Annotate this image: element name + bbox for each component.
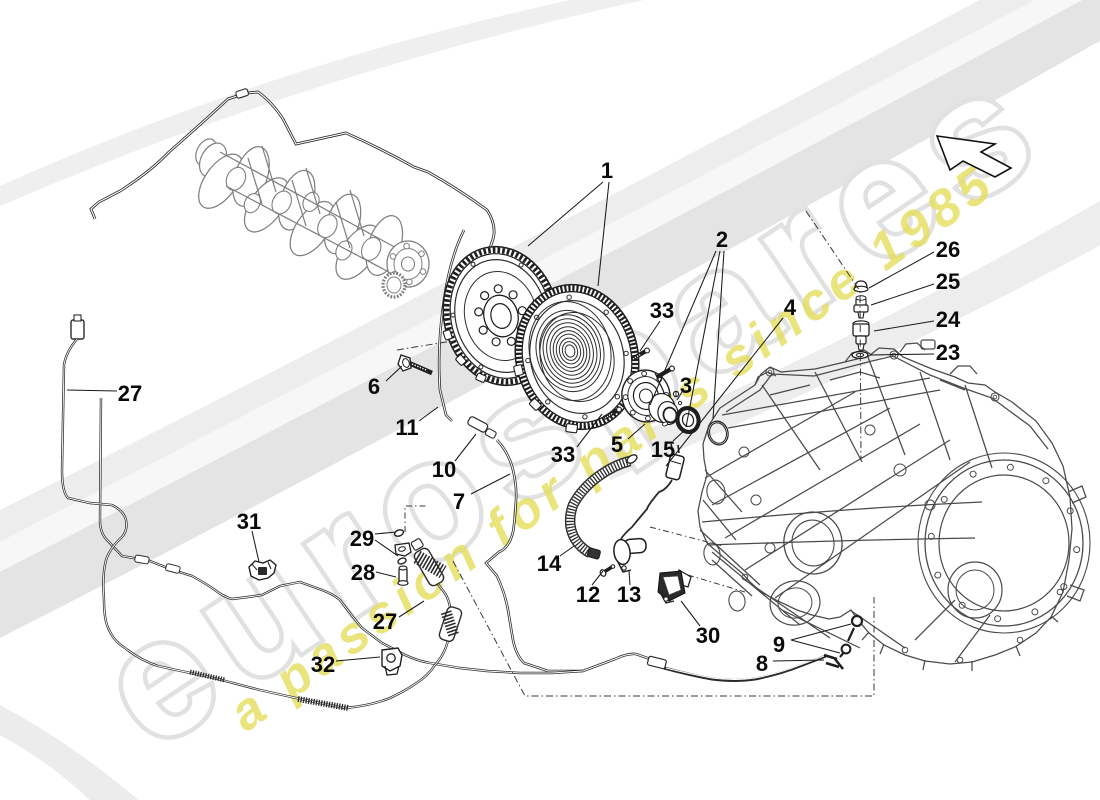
svg-text:3: 3: [680, 373, 692, 398]
svg-text:26: 26: [936, 237, 960, 262]
svg-text:9: 9: [773, 632, 785, 657]
svg-text:11: 11: [395, 415, 418, 440]
svg-text:27: 27: [118, 381, 142, 406]
svg-text:1: 1: [601, 158, 613, 183]
svg-text:32: 32: [311, 652, 335, 677]
svg-text:30: 30: [696, 623, 720, 648]
svg-text:8: 8: [756, 651, 768, 676]
svg-text:14: 14: [537, 551, 562, 576]
svg-text:33: 33: [650, 298, 674, 323]
svg-text:13: 13: [617, 582, 641, 607]
svg-text:28: 28: [351, 560, 375, 585]
svg-text:6: 6: [368, 374, 380, 399]
svg-text:15: 15: [651, 437, 675, 462]
svg-text:12: 12: [576, 582, 600, 607]
svg-text:31: 31: [237, 509, 261, 534]
svg-text:7: 7: [453, 489, 465, 514]
svg-text:33: 33: [551, 442, 575, 467]
svg-text:4: 4: [784, 295, 797, 320]
svg-text:10: 10: [432, 457, 456, 482]
svg-text:2: 2: [716, 227, 728, 252]
svg-text:29: 29: [350, 526, 374, 551]
svg-text:24: 24: [936, 307, 961, 332]
svg-text:23: 23: [936, 340, 960, 365]
svg-text:25: 25: [936, 269, 960, 294]
svg-text:27: 27: [373, 609, 397, 634]
svg-text:5: 5: [611, 432, 623, 457]
